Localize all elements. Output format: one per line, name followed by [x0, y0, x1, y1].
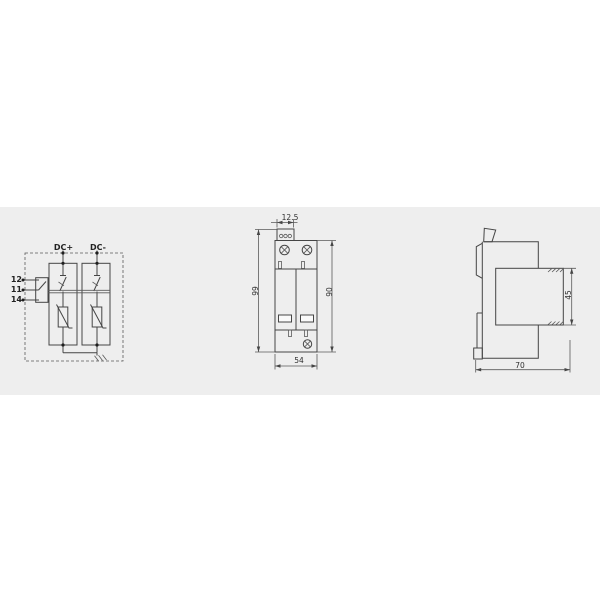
latch-slot	[302, 262, 305, 269]
dim-label-depth: 70	[505, 362, 535, 370]
thermal-disconnect-switch-icon	[93, 276, 101, 292]
circuit-diagram	[22, 251, 124, 362]
side-view	[474, 228, 576, 372]
terminal-label-11: 11	[8, 286, 22, 294]
terminal-label-14: 14	[8, 296, 22, 304]
terminal-screw-icon	[284, 234, 287, 237]
dim-label-module-height: 45	[565, 283, 575, 307]
thermal-disconnect-switch-icon	[59, 276, 67, 292]
module-side-profile	[496, 268, 564, 325]
screw-icon	[280, 245, 290, 255]
label-dc-plus: DC+	[47, 244, 80, 252]
front-view	[255, 219, 336, 370]
body-top-edge	[484, 242, 539, 269]
latch-slot	[279, 262, 282, 269]
dim-label-body-height: 90	[326, 280, 336, 304]
screw-icon	[303, 340, 311, 348]
body-bottom-edge	[482, 325, 538, 358]
varistor-icon	[91, 292, 107, 353]
remote-signal-contact-icon	[23, 278, 48, 303]
screw-icon	[302, 245, 312, 255]
terminal-label-12: 12	[8, 276, 22, 284]
latch-slot	[305, 330, 308, 337]
label-dc-minus: DC-	[82, 244, 115, 252]
earth-ground-icon	[95, 353, 107, 361]
din-clip-upper	[476, 243, 482, 278]
terminal-screw-icon	[280, 234, 283, 237]
dim-label-body-width: 54	[284, 357, 314, 365]
varistor-icon	[57, 292, 73, 353]
top-guide-hook	[484, 228, 496, 241]
status-indicator-window	[279, 315, 292, 322]
dim-label-total-height: 99	[252, 279, 262, 303]
latch-slot	[289, 330, 292, 337]
technical-drawing-page: { "document": { "type": "technical-dimen…	[0, 0, 600, 600]
terminal-screw-icon	[288, 234, 291, 237]
dim-label-terminal-width: 12.5	[275, 214, 305, 222]
status-indicator-window	[301, 315, 314, 322]
drawing-canvas	[0, 0, 600, 600]
din-clip-foot	[474, 348, 483, 359]
din-clip-lower	[477, 313, 482, 348]
junction-dots	[22, 251, 99, 346]
grip-ridges	[548, 269, 563, 325]
